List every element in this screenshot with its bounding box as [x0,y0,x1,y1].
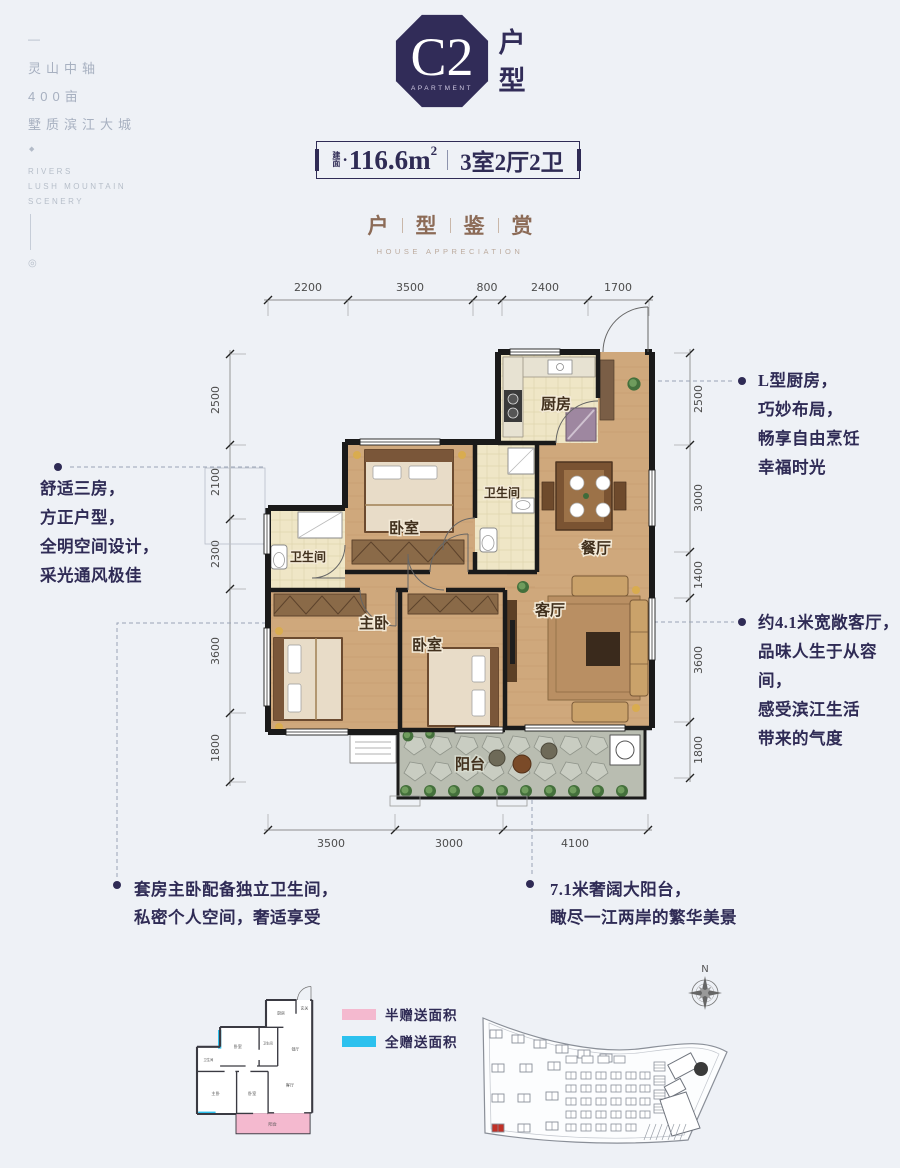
plant [474,787,481,794]
plate [596,476,610,490]
plant [519,583,526,590]
dim-label: 3500 [396,281,424,294]
burner [508,394,518,404]
wardrobe [408,594,498,614]
annotation-line: 感受滨江生活 [758,695,900,724]
mini-floor [197,1000,312,1113]
dim-label: 1700 [604,281,632,294]
bullet [526,880,534,888]
dim-label: 2100 [209,468,222,496]
plant [402,787,409,794]
annotation-line: 7.1米奢阔大阳台， [550,876,737,904]
ac-platform [350,735,396,763]
chair [614,482,626,510]
plant [426,787,433,794]
pillow [472,656,485,682]
dim-label: 3600 [209,637,222,665]
pillow [472,690,485,716]
landmark-building [694,1062,708,1076]
building [654,1090,665,1099]
plate [596,503,610,517]
bullet [738,618,746,626]
room-label-bed1: 卧室 [389,519,419,537]
dim-label: 3000 [435,837,463,850]
annotation-line: 幸福时光 [758,453,860,482]
mini-room-label: 客厅 [286,1081,294,1088]
plant [404,732,410,738]
balcony-table [513,755,531,773]
bed [365,450,453,532]
plant [498,787,505,794]
annotation-line: 品味人生于从容间， [758,637,900,695]
annotation-line: 方正户型， [40,503,159,532]
building [654,1062,665,1071]
plant [629,379,637,387]
dim-label: 3000 [692,484,705,512]
annotation-line: 约4.1米宽敞客厅， [758,608,900,637]
legend-item-full-gift: 全赠送面积 [342,1031,458,1051]
room-label-kitchen: 厨房 [541,395,571,413]
bed-headboard [365,450,453,462]
room-label-balcony: 阳台 [455,755,485,773]
stool [489,750,505,766]
dim-label: 4100 [561,837,589,850]
annotation-line: 全明空间设计， [40,532,159,561]
room-label-bath2: 卫生间 [290,549,326,564]
building [614,1056,625,1063]
lamp [275,627,283,635]
room-label-master: 主卧 [359,614,389,632]
plant [570,787,577,794]
site-plan: N [483,964,727,1143]
annotation-line: 套房主卧配备独立卫生间， [134,876,338,904]
bed-headboard [490,648,498,726]
dim-label: 3500 [317,837,345,850]
mini-room-label: 阳台 [268,1120,276,1127]
mini-room-label: 卫生间 [203,1057,213,1062]
dim-label: 2500 [692,385,705,413]
sofa [572,702,628,722]
compass [688,976,722,1010]
bed [428,648,498,726]
room-label-bath1: 卫生间 [484,485,520,500]
building [654,1076,665,1085]
annotation-line: 带来的气度 [758,724,900,753]
annotation-master-suite: 套房主卧配备独立卫生间， 私密个人空间，奢适享受 [134,876,338,932]
dim-label: 1800 [692,736,705,764]
annotation-line: 采光通风极佳 [40,561,159,590]
room-label-dining: 餐厅 [581,539,611,557]
centerpiece [583,493,589,499]
compass-north-label: N [701,964,708,975]
bed [274,638,342,720]
annotation-balcony: 7.1米奢阔大阳台， 瞰尽一江两岸的繁华美景 [550,876,737,932]
room-label-living: 客厅 [534,601,565,619]
dim-label: 2400 [531,281,559,294]
chair [542,482,554,510]
bullet [738,377,746,385]
mini-door-arc [298,987,312,1001]
bed-headboard [274,638,284,720]
dim-label: 1400 [692,561,705,589]
plant [594,787,601,794]
floor-lamp [632,586,640,594]
mini-room-label: 厨房 [277,1010,285,1015]
legend-label: 全赠送面积 [385,1031,458,1051]
plate [570,503,584,517]
pillow [409,466,437,479]
dim-label: 2500 [209,386,222,414]
hall-cabinet [600,360,614,420]
building [566,1056,577,1063]
mini-room-label: 卧室 [248,1090,256,1097]
annotation-living: 约4.1米宽敞客厅， 品味人生于从容间， 感受滨江生活 带来的气度 [758,608,900,753]
annotation-line: L型厨房， [758,366,860,395]
room-label-bed2: 卧室 [412,636,442,654]
coffee-table [586,632,620,666]
tv [510,620,515,664]
floor-lamp [632,704,640,712]
plate [570,476,584,490]
plant [450,787,457,794]
legend-swatch-cyan [342,1036,376,1047]
legend: 半赠送面积 全赠送面积 [342,1004,458,1058]
annotation-line: 私密个人空间，奢适享受 [134,904,338,932]
lamp [353,451,361,459]
pillow [288,684,301,712]
plant [618,787,625,794]
building [582,1056,593,1063]
annotation-line: 舒适三房， [40,474,159,503]
mini-room-label: 主卧 [211,1090,219,1097]
flyer-page: — 灵山中轴 400亩 墅质滨江大城 ◆ RIVERS LUSH MOUNTAI… [0,0,900,1168]
sofa-main [630,600,648,696]
dim-label: 1800 [209,734,222,762]
annotation-left: 舒适三房， 方正户型， 全明空间设计， 采光通风极佳 [40,474,159,590]
burner [508,408,518,418]
lamp [458,451,466,459]
dim-label: 800 [477,281,498,294]
bullet [113,881,121,889]
stool [541,743,557,759]
legend-label: 半赠送面积 [385,1004,458,1024]
annotation-line: 瞰尽一江两岸的繁华美景 [550,904,737,932]
mini-room-label: 卧室 [234,1043,242,1050]
pillow [288,645,301,673]
dim-label: 3600 [692,646,705,674]
building [598,1056,609,1063]
dim-label: 2200 [294,281,322,294]
pillow [373,466,401,479]
annotation-kitchen: L型厨房， 巧妙布局， 畅享自由烹饪 幸福时光 [758,366,860,482]
legend-swatch-pink [342,1009,376,1020]
mini-room-label: 餐厅 [292,1046,300,1051]
annotation-line: 巧妙布局， [758,395,860,424]
washing-machine [610,735,640,765]
main-floorplan: 厨房 卧室 卫生间 餐厅 卫生间 主卧 卧室 客厅 阳台 [205,307,655,806]
toilet [271,545,287,569]
mini-room-label: 玄关 [301,1005,309,1010]
bullet [54,463,62,471]
kitchen-sink [548,360,572,374]
plant [546,787,553,794]
sofa [572,576,628,596]
legend-item-half-gift: 半赠送面积 [342,1004,458,1024]
mini-room-label: 卫生间 [263,1040,273,1045]
plant [522,787,529,794]
mini-keyplan: 玄关 厨房 卧室 卫生间 餐厅 卫生间 主卧 卧室 客厅 阳台 [197,987,312,1134]
annotation-line: 畅享自由烹饪 [758,424,860,453]
